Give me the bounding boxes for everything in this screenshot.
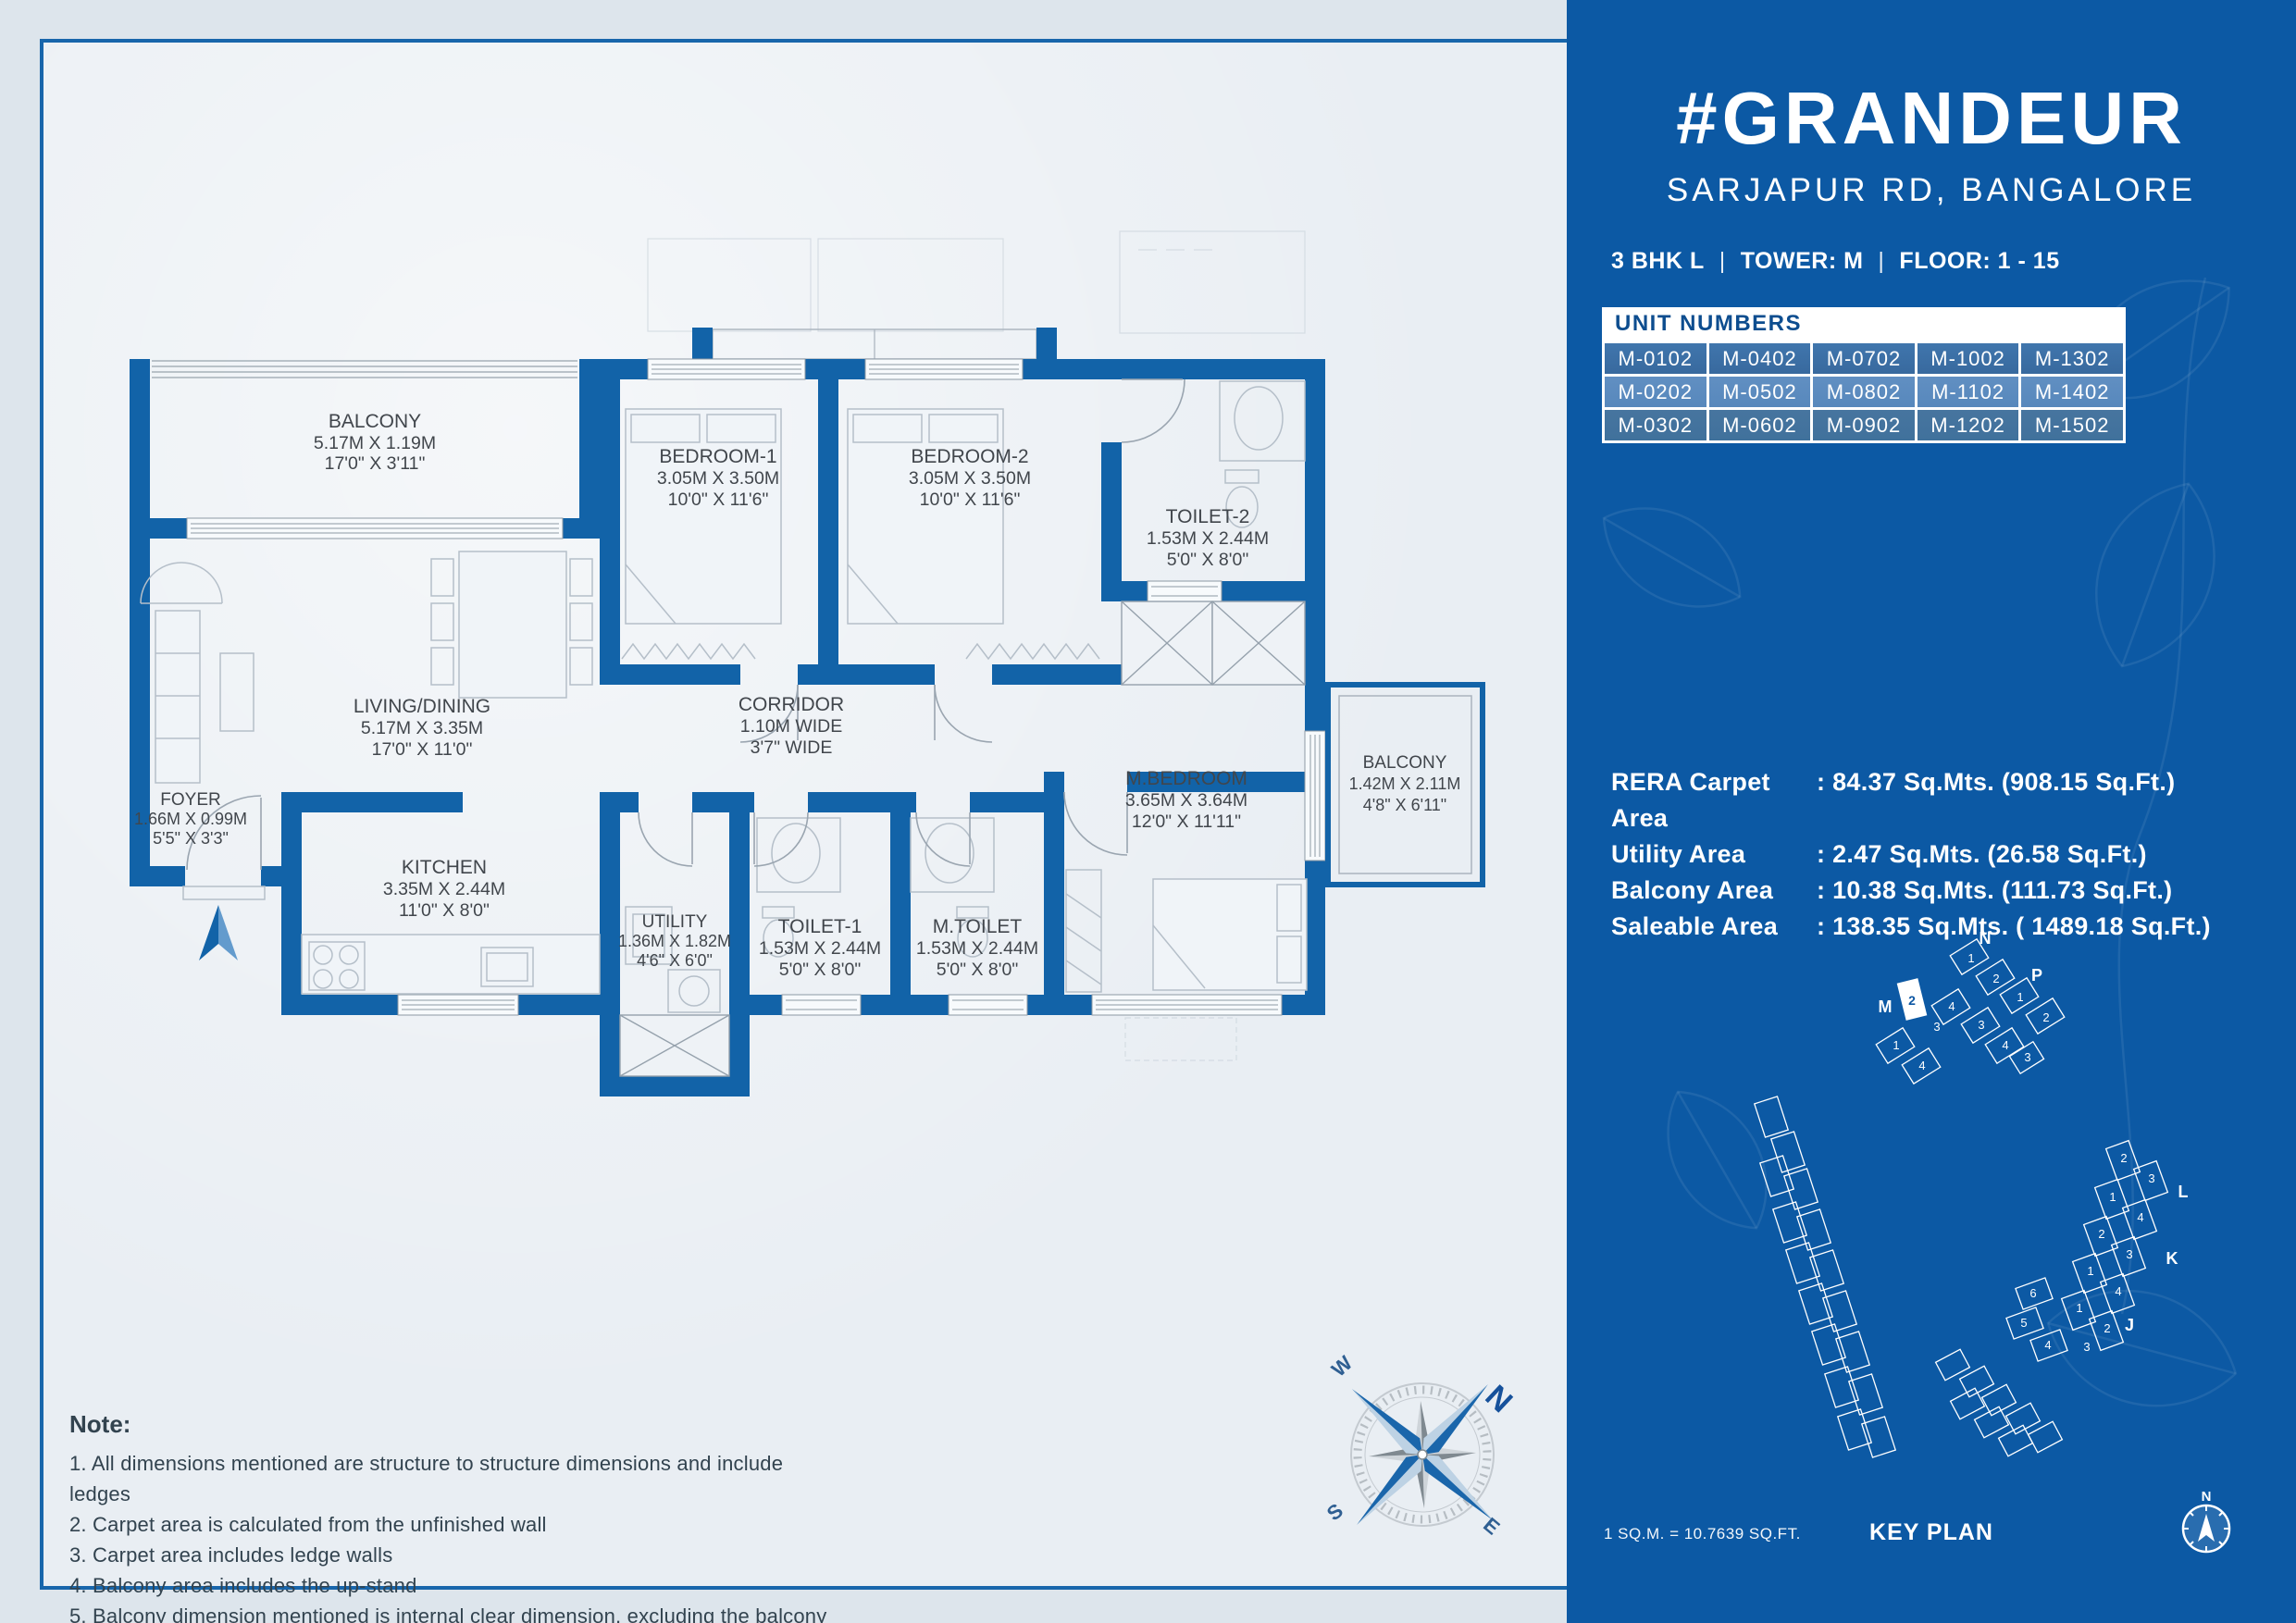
area-row: Saleable Area : 138.35 Sq.Mts. ( 1489.18… [1611, 909, 2211, 945]
compass-east-label: E [1479, 1513, 1504, 1540]
label-toilet-1: TOILET-1 1.53M X 2.44M 5'0" X 8'0" [759, 916, 881, 980]
svg-text:17'0" X 11'0": 17'0" X 11'0" [372, 739, 473, 760]
tower-label-k: K [2166, 1249, 2178, 1268]
svg-text:5'5" X 3'3": 5'5" X 3'3" [153, 829, 229, 848]
svg-text:3: 3 [1978, 1018, 1984, 1032]
tower-label-j: J [2125, 1316, 2134, 1334]
unit-cell: M-0302 [1605, 410, 1706, 440]
svg-text:BEDROOM-1: BEDROOM-1 [659, 446, 776, 467]
svg-text:6: 6 [2029, 1286, 2036, 1300]
entrance-arrow [199, 905, 238, 960]
svg-text:2: 2 [2104, 1321, 2110, 1335]
svg-text:N: N [2202, 1489, 2212, 1505]
svg-text:FOYER: FOYER [160, 790, 220, 810]
svg-text:CORRIDOR: CORRIDOR [738, 694, 844, 715]
svg-text:1: 1 [1967, 951, 1974, 965]
key-plan-cluster-bottom [1936, 1349, 2063, 1456]
notes-heading: Note: [69, 1410, 828, 1439]
label-corridor: CORRIDOR 1.10M WIDE 3'7" WIDE [738, 694, 844, 758]
label-bedroom-1: BEDROOM-1 3.05M X 3.50M 10'0" X 11'6" [657, 446, 779, 510]
note-item: 1. All dimensions mentioned are structur… [69, 1448, 828, 1509]
label-toilet-2: TOILET-2 1.53M X 2.44M 5'0" X 8'0" [1147, 506, 1269, 570]
svg-text:3: 3 [1933, 1020, 1940, 1034]
svg-text:1.36M X 1.82M: 1.36M X 1.82M [618, 932, 731, 950]
unit-table-row: M-0102 M-0402 M-0702 M-1002 M-1302 [1605, 341, 2123, 374]
area-value: : 10.38 Sq.Mts. (111.73 Sq.Ft.) [1817, 873, 2172, 909]
svg-text:3: 3 [2126, 1247, 2132, 1261]
unit-numbers-table: UNIT NUMBERS M-0102 M-0402 M-0702 M-1002… [1602, 307, 2126, 443]
unit-cell: M-1302 [2021, 343, 2123, 374]
svg-text:4: 4 [1918, 1059, 1925, 1072]
svg-text:10'0" X 11'6": 10'0" X 11'6" [920, 489, 1021, 510]
svg-text:4: 4 [2044, 1338, 2051, 1352]
svg-text:2: 2 [2120, 1151, 2127, 1165]
svg-text:1: 1 [1893, 1038, 1899, 1052]
svg-text:5.17M X 1.19M: 5.17M X 1.19M [314, 433, 436, 453]
unit-table-row: M-0302 M-0602 M-0902 M-1202 M-1502 [1605, 407, 2123, 440]
unit-table-header: UNIT NUMBERS [1602, 307, 2126, 341]
info-panel: N P M L K J 1 2 1 2 4 3 3 4 3 1 4 2 [1567, 0, 2296, 1623]
area-value: : 2.47 Sq.Mts. (26.58 Sq.Ft.) [1817, 836, 2147, 873]
svg-text:KITCHEN: KITCHEN [402, 857, 487, 878]
note-item: 2. Carpet area is calculated from the un… [69, 1509, 828, 1540]
unit-cell: M-0502 [1709, 377, 1811, 407]
unit-cell: M-1102 [1917, 377, 2019, 407]
key-plan-title: KEY PLAN [1567, 1519, 2296, 1546]
svg-text:4'6" X 6'0": 4'6" X 6'0" [637, 951, 713, 970]
svg-text:4: 4 [2137, 1210, 2143, 1224]
project-location: SARJAPUR RD, BANGALORE [1567, 172, 2296, 209]
balcony-parapet [152, 361, 577, 378]
svg-text:5: 5 [2020, 1316, 2027, 1330]
label-bedroom-2: BEDROOM-2 3.05M X 3.50M 10'0" X 11'6" [909, 446, 1031, 510]
project-title: #GRANDEUR [1567, 76, 2296, 161]
svg-text:3'7" WIDE: 3'7" WIDE [751, 737, 833, 758]
unit-cell: M-1502 [2021, 410, 2123, 440]
ac-ledge [692, 328, 1057, 359]
area-value: : 138.35 Sq.Mts. ( 1489.18 Sq.Ft.) [1817, 909, 2211, 945]
label-m-toilet: M.TOILET 1.53M X 2.44M 5'0" X 8'0" [916, 916, 1038, 980]
svg-text:4'8" X 6'11": 4'8" X 6'11" [1363, 796, 1446, 814]
svg-text:4: 4 [2002, 1038, 2008, 1052]
spec-separator: | [1719, 248, 1726, 275]
unit-spec-line: 3 BHK L | TOWER: M | FLOOR: 1 - 15 [1611, 248, 2060, 275]
unit-cell: M-0902 [1813, 410, 1915, 440]
svg-text:4: 4 [1948, 999, 1955, 1013]
tower-label-m: M [1879, 997, 1893, 1016]
svg-text:BALCONY: BALCONY [329, 411, 421, 432]
floor-plan-brochure: { "plan": { "rooms": [ {"name":"BALCONY"… [0, 0, 2296, 1623]
area-label: Balcony Area [1611, 873, 1817, 909]
spec-separator: | [1878, 248, 1884, 275]
spec-tower: TOWER: M [1741, 248, 1864, 275]
svg-text:1.66M X 0.99M: 1.66M X 0.99M [134, 810, 247, 828]
floor-plan-sheet: BALCONY 5.17M X 1.19M 17'0" X 3'11" BEDR… [0, 0, 1567, 1623]
svg-text:BALCONY: BALCONY [1363, 753, 1447, 773]
note-item: 4. Balcony area includes the up-stand [69, 1570, 828, 1601]
svg-text:LIVING/DINING: LIVING/DINING [354, 696, 490, 717]
compass-north-label: N [1479, 1379, 1520, 1420]
compass-rose-icon: N W S E [1286, 1319, 1558, 1591]
svg-text:12'0" X 11'11": 12'0" X 11'11" [1132, 811, 1241, 832]
label-foyer: FOYER 1.66M X 0.99M 5'5" X 3'3" [134, 790, 247, 848]
unit-cell: M-0602 [1709, 410, 1811, 440]
svg-text:5.17M X 3.35M: 5.17M X 3.35M [361, 718, 483, 738]
svg-text:1: 1 [2017, 990, 2023, 1004]
compass-south-label: S [1322, 1499, 1347, 1526]
note-item: 5. Balcony dimension mentioned is intern… [69, 1601, 828, 1623]
svg-text:3.35M X 2.44M: 3.35M X 2.44M [383, 879, 505, 899]
tower-label-l: L [2178, 1183, 2189, 1201]
floor-plan-drawing: BALCONY 5.17M X 1.19M 17'0" X 3'11" BEDR… [0, 0, 1567, 1623]
compass-west-label: W [1327, 1351, 1357, 1381]
svg-text:1.42M X 2.11M: 1.42M X 2.11M [1349, 774, 1461, 793]
svg-text:2: 2 [2098, 1227, 2104, 1241]
svg-text:3.65M X 3.64M: 3.65M X 3.64M [1125, 790, 1247, 811]
notes-section: Note: 1. All dimensions mentioned are st… [69, 1410, 828, 1623]
area-row: Balcony Area : 10.38 Sq.Mts. (111.73 Sq.… [1611, 873, 2211, 909]
svg-text:5'0" X 8'0": 5'0" X 8'0" [937, 960, 1019, 980]
svg-text:1.53M X 2.44M: 1.53M X 2.44M [916, 938, 1038, 959]
svg-text:17'0" X 3'11": 17'0" X 3'11" [325, 453, 426, 474]
key-plan-cluster-long [1755, 1096, 1895, 1457]
svg-text:BEDROOM-2: BEDROOM-2 [911, 446, 1028, 467]
svg-text:1.10M WIDE: 1.10M WIDE [740, 716, 843, 737]
svg-text:4: 4 [2115, 1284, 2121, 1298]
svg-text:2: 2 [1992, 972, 1999, 985]
svg-text:3: 3 [2083, 1340, 2090, 1354]
key-plan-unit-numbers-right: 2 3 1 4 2 3 1 4 1 2 3 6 5 4 [2020, 1151, 2154, 1354]
svg-text:TOILET-1: TOILET-1 [778, 916, 863, 937]
label-balcony-right: BALCONY 1.42M X 2.11M 4'8" X 6'11" [1349, 753, 1461, 814]
unit-cell: M-1202 [1917, 410, 2019, 440]
area-label: Utility Area [1611, 836, 1817, 873]
highlighted-unit-label: 2 [1908, 993, 1916, 1008]
spec-type: 3 BHK L [1611, 248, 1705, 275]
svg-text:3.05M X 3.50M: 3.05M X 3.50M [657, 468, 779, 489]
key-plan-map: N P M L K J 1 2 1 2 4 3 3 4 3 1 4 2 [1755, 929, 2189, 1457]
spec-floor: FLOOR: 1 - 15 [1899, 248, 2059, 275]
area-value: : 84.37 Sq.Mts. (908.15 Sq.Ft.) [1817, 764, 2175, 836]
label-living-dining: LIVING/DINING 5.17M X 3.35M 17'0" X 11'0… [354, 696, 490, 760]
unit-table-row: M-0202 M-0502 M-0802 M-1102 M-1402 [1605, 374, 2123, 407]
unit-cell: M-1402 [2021, 377, 2123, 407]
svg-text:3: 3 [2024, 1050, 2030, 1064]
svg-text:1.53M X 2.44M: 1.53M X 2.44M [759, 938, 881, 959]
key-plan-tower-labels: N P M L K J [1879, 929, 2189, 1334]
label-utility: UTILITY 1.36M X 1.82M 4'6" X 6'0" [618, 912, 731, 970]
label-kitchen: KITCHEN 3.35M X 2.44M 11'0" X 8'0" [383, 857, 505, 921]
svg-text:10'0" X 11'6": 10'0" X 11'6" [668, 489, 769, 510]
svg-text:11'0" X 8'0": 11'0" X 8'0" [399, 900, 490, 921]
svg-text:M.BEDROOM: M.BEDROOM [1125, 768, 1247, 789]
area-label: Saleable Area [1611, 909, 1817, 945]
area-row: RERA Carpet Area : 84.37 Sq.Mts. (908.15… [1611, 764, 2211, 836]
unit-cell: M-0802 [1813, 377, 1915, 407]
svg-text:1.53M X 2.44M: 1.53M X 2.44M [1147, 528, 1269, 549]
label-balcony-top: BALCONY 5.17M X 1.19M 17'0" X 3'11" [314, 411, 436, 474]
area-row: Utility Area : 2.47 Sq.Mts. (26.58 Sq.Ft… [1611, 836, 2211, 873]
svg-text:M.TOILET: M.TOILET [933, 916, 1023, 937]
label-m-bedroom: M.BEDROOM 3.65M X 3.64M 12'0" X 11'11" [1125, 768, 1247, 832]
unit-cell: M-0702 [1813, 343, 1915, 374]
key-plan-cluster-right [2006, 1141, 2167, 1361]
unit-cell: M-0102 [1605, 343, 1706, 374]
svg-text:5'0" X 8'0": 5'0" X 8'0" [779, 960, 862, 980]
svg-text:2: 2 [2042, 1010, 2049, 1024]
note-item: 3. Carpet area includes ledge walls [69, 1540, 828, 1570]
unit-cell: M-0402 [1709, 343, 1811, 374]
tower-label-p: P [2031, 966, 2042, 985]
svg-text:5'0" X 8'0": 5'0" X 8'0" [1167, 550, 1249, 570]
svg-text:UTILITY: UTILITY [642, 912, 708, 932]
svg-text:3: 3 [2148, 1171, 2154, 1185]
unit-cell: M-1002 [1917, 343, 2019, 374]
svg-text:1: 1 [2087, 1264, 2093, 1278]
area-statement: RERA Carpet Area : 84.37 Sq.Mts. (908.15… [1611, 764, 2211, 945]
svg-text:1: 1 [2076, 1301, 2082, 1315]
svg-text:3.05M X 3.50M: 3.05M X 3.50M [909, 468, 1031, 489]
svg-text:1: 1 [2109, 1190, 2116, 1204]
unit-cell: M-0202 [1605, 377, 1706, 407]
svg-text:TOILET-2: TOILET-2 [1166, 506, 1250, 527]
area-label: RERA Carpet Area [1611, 764, 1817, 836]
